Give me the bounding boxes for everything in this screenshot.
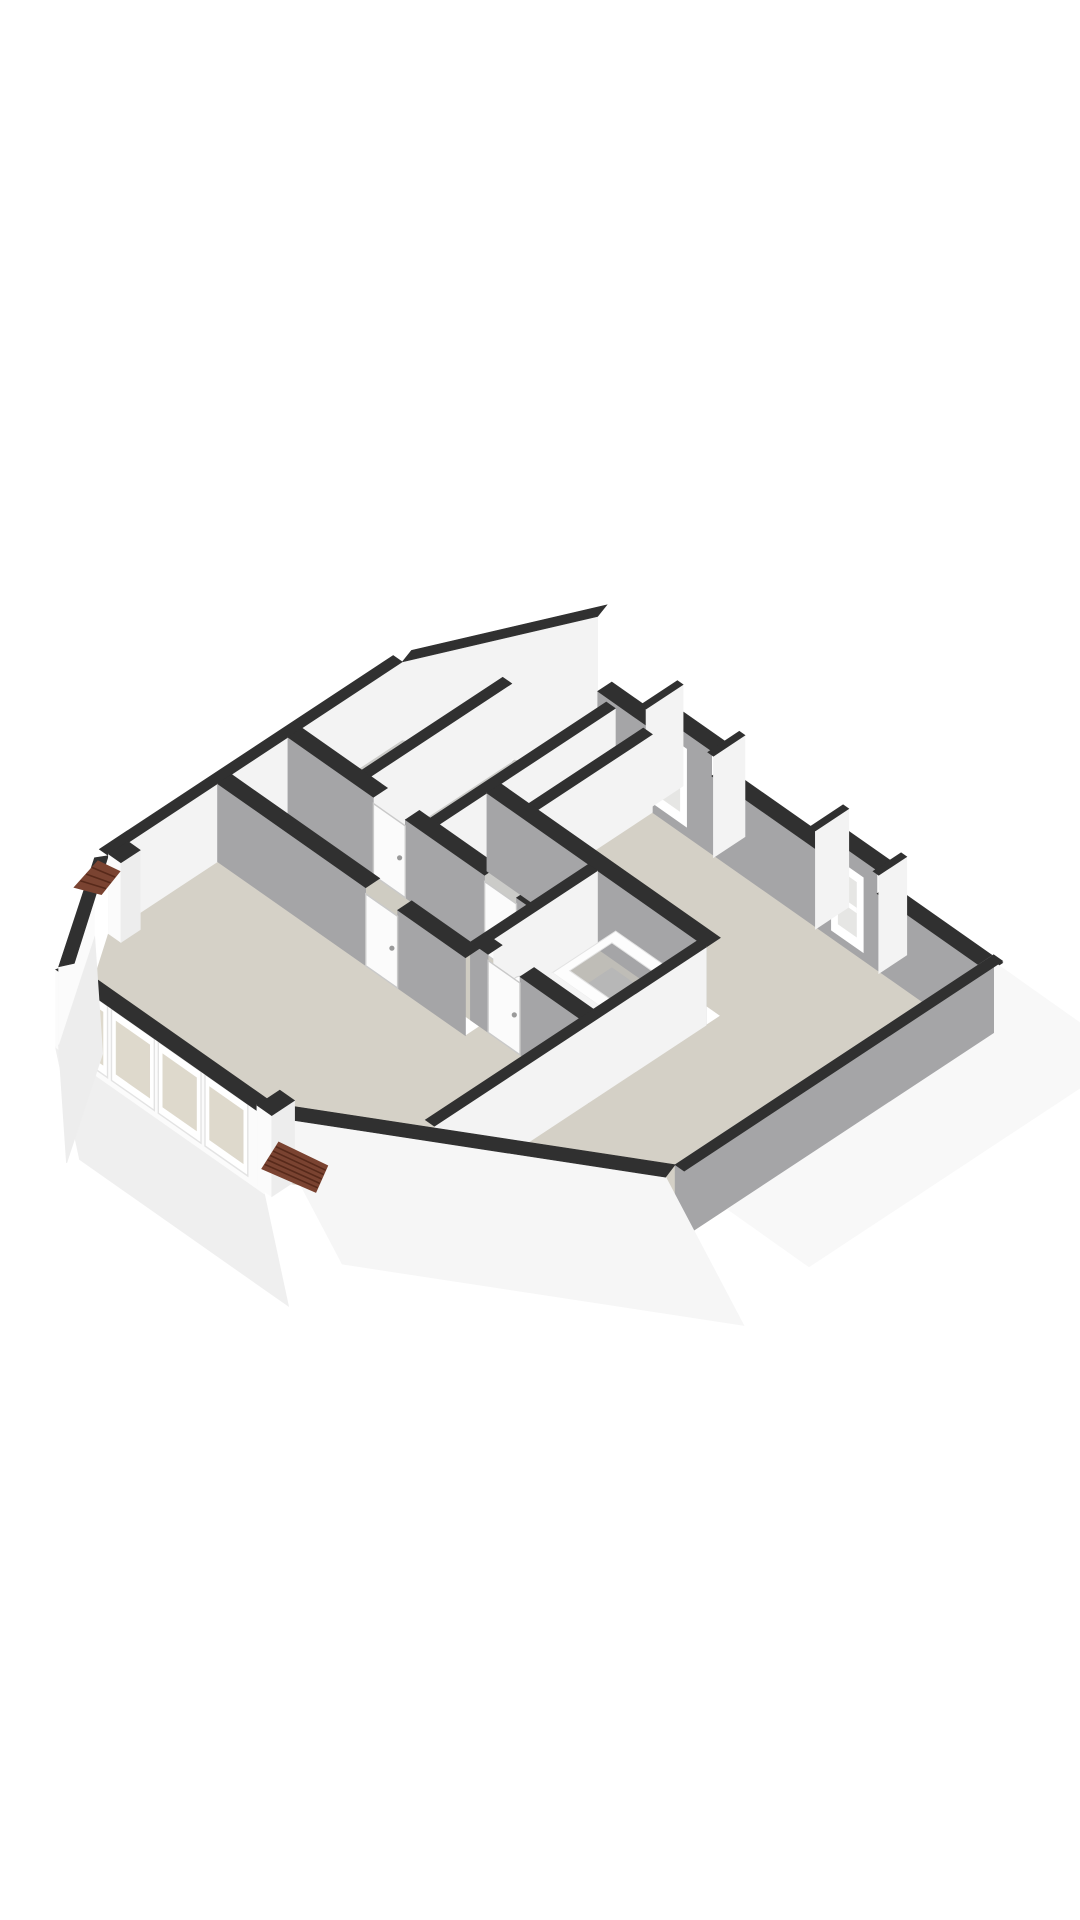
door-livingroom-handle bbox=[389, 946, 394, 951]
dormer-1-cheek-right-face bbox=[713, 735, 745, 857]
south-pillar-south-face bbox=[257, 1105, 272, 1197]
bathroom-south-wall-face bbox=[470, 942, 488, 1032]
dormer-2-cheek-right-face bbox=[879, 857, 907, 974]
floorplan-3d-render bbox=[0, 0, 1080, 1920]
door-bathroom-handle bbox=[512, 1012, 517, 1017]
door-topleft-room-handle bbox=[397, 855, 402, 860]
west-pillar-east-face bbox=[121, 850, 140, 942]
floorplan-page bbox=[0, 0, 1080, 1920]
